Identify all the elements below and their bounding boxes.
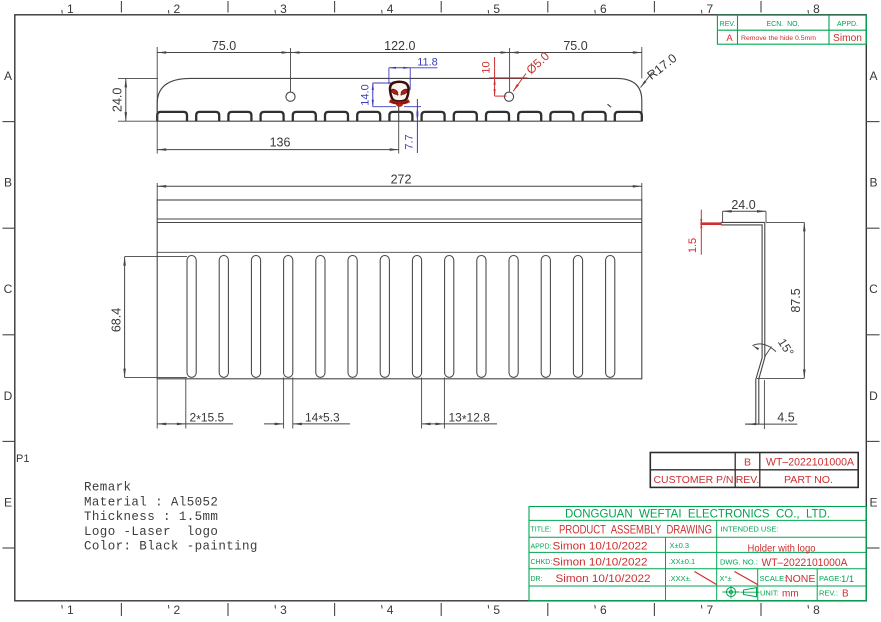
svg-text:DWG. NO.:: DWG. NO.: bbox=[720, 558, 758, 567]
svg-text:2: 2 bbox=[174, 2, 181, 16]
svg-text:Simon 10/10/2022: Simon 10/10/2022 bbox=[553, 541, 648, 553]
svg-text:4.5: 4.5 bbox=[777, 410, 794, 424]
svg-text:E: E bbox=[869, 495, 877, 509]
svg-text:X°±: X°± bbox=[720, 574, 732, 583]
svg-text:mm: mm bbox=[782, 589, 799, 600]
svg-text:68.4: 68.4 bbox=[109, 308, 123, 332]
svg-text:REV.: REV. bbox=[736, 474, 760, 486]
svg-text:APPD:: APPD: bbox=[531, 544, 552, 551]
svg-text:7: 7 bbox=[707, 603, 714, 617]
svg-text:D: D bbox=[4, 389, 13, 403]
svg-text:14.0: 14.0 bbox=[360, 84, 372, 105]
svg-text:Remark: Remark bbox=[84, 481, 131, 495]
svg-text:Holder with logo: Holder with logo bbox=[748, 544, 816, 555]
svg-text:.XXX±.: .XXX±. bbox=[669, 574, 692, 583]
svg-text:8: 8 bbox=[813, 2, 820, 16]
svg-text:TITLE:: TITLE: bbox=[531, 527, 552, 534]
svg-text:4: 4 bbox=[387, 2, 394, 16]
svg-text:5: 5 bbox=[493, 603, 500, 617]
svg-text:B: B bbox=[842, 589, 849, 600]
svg-text:272: 272 bbox=[391, 173, 412, 187]
svg-text:1/1: 1/1 bbox=[841, 574, 854, 585]
svg-text:A: A bbox=[869, 69, 877, 83]
svg-text:13*12.8: 13*12.8 bbox=[449, 410, 491, 426]
svg-text:REV.:: REV.: bbox=[819, 589, 838, 598]
svg-text:WT–2022101000A: WT–2022101000A bbox=[762, 557, 849, 569]
svg-text:Thickness : 1.5mm: Thickness : 1.5mm bbox=[84, 510, 218, 524]
svg-text:2*15.5: 2*15.5 bbox=[190, 410, 225, 426]
svg-text:P1: P1 bbox=[16, 453, 29, 465]
svg-text:7: 7 bbox=[707, 2, 714, 16]
svg-text:PAGE:: PAGE: bbox=[819, 574, 841, 583]
svg-text:11.8: 11.8 bbox=[417, 57, 438, 69]
svg-text:10: 10 bbox=[481, 61, 493, 73]
svg-text:Simon 10/10/2022: Simon 10/10/2022 bbox=[553, 557, 648, 569]
svg-text:CUSTOMER P/N: CUSTOMER P/N bbox=[654, 474, 734, 486]
svg-text:REV.: REV. bbox=[720, 21, 736, 28]
svg-text:1: 1 bbox=[67, 2, 74, 16]
svg-text:Simon 10/10/2022: Simon 10/10/2022 bbox=[556, 573, 651, 585]
svg-text:ECN. NO.: ECN. NO. bbox=[766, 21, 799, 28]
svg-text:X±0.3: X±0.3 bbox=[670, 541, 690, 550]
svg-text:2: 2 bbox=[174, 603, 181, 617]
svg-text:24.0: 24.0 bbox=[111, 88, 125, 112]
svg-text:B: B bbox=[744, 457, 751, 469]
svg-text:1.5: 1.5 bbox=[687, 238, 699, 253]
svg-text:B: B bbox=[4, 176, 12, 190]
svg-text:3: 3 bbox=[280, 603, 287, 617]
svg-text:PRODUCT ASSEMBLY DRAWING: PRODUCT ASSEMBLY DRAWING bbox=[559, 525, 712, 537]
svg-text:75.0: 75.0 bbox=[212, 39, 236, 53]
svg-text:APPD.: APPD. bbox=[837, 21, 858, 28]
svg-text:7.7: 7.7 bbox=[404, 134, 416, 149]
svg-text:UNIT:: UNIT: bbox=[760, 589, 779, 598]
svg-text:INTENDED USE:: INTENDED USE: bbox=[721, 525, 779, 534]
svg-text:3: 3 bbox=[280, 2, 287, 16]
svg-text:Remove the hide 0.5mm: Remove the hide 0.5mm bbox=[741, 35, 816, 42]
svg-text:WT–2022101000A: WT–2022101000A bbox=[766, 457, 855, 469]
svg-text:PART NO.: PART NO. bbox=[784, 474, 833, 486]
svg-text:75.0: 75.0 bbox=[563, 39, 587, 53]
svg-text:C: C bbox=[4, 282, 13, 296]
svg-text:1: 1 bbox=[67, 603, 74, 617]
svg-text:C: C bbox=[869, 282, 878, 296]
svg-text:6: 6 bbox=[600, 603, 607, 617]
svg-text:8: 8 bbox=[813, 603, 820, 617]
svg-text:Logo -Laser logo: Logo -Laser logo bbox=[84, 525, 218, 539]
svg-text:87.5: 87.5 bbox=[789, 288, 803, 312]
svg-text:DONGGUAN WEFTAI ELECTRONICS: DONGGUAN WEFTAI ELECTRONICS CO., LTD. bbox=[565, 508, 830, 520]
svg-text:6: 6 bbox=[600, 2, 607, 16]
svg-text:Material : Al5052: Material : Al5052 bbox=[84, 495, 218, 509]
svg-text:A: A bbox=[4, 69, 12, 83]
svg-text:SCALE:: SCALE: bbox=[760, 574, 787, 583]
svg-text:4: 4 bbox=[387, 603, 394, 617]
svg-text:.XX±0.1: .XX±0.1 bbox=[669, 557, 696, 566]
svg-text:14*5.3: 14*5.3 bbox=[305, 410, 340, 426]
svg-text:D: D bbox=[869, 389, 878, 403]
svg-text:24.0: 24.0 bbox=[731, 198, 755, 212]
svg-text:5: 5 bbox=[493, 2, 500, 16]
svg-text:NONE: NONE bbox=[785, 573, 815, 585]
svg-text:Color: Black -painting: Color: Black -painting bbox=[84, 540, 258, 554]
svg-text:136: 136 bbox=[270, 136, 291, 150]
svg-text:122.0: 122.0 bbox=[384, 39, 415, 53]
svg-text:Simon: Simon bbox=[833, 32, 862, 44]
svg-text:CHKD:: CHKD: bbox=[531, 559, 553, 566]
svg-text:B: B bbox=[869, 176, 877, 190]
svg-text:DR:: DR: bbox=[531, 576, 543, 583]
svg-text:E: E bbox=[4, 495, 12, 509]
svg-text:A: A bbox=[726, 33, 733, 44]
